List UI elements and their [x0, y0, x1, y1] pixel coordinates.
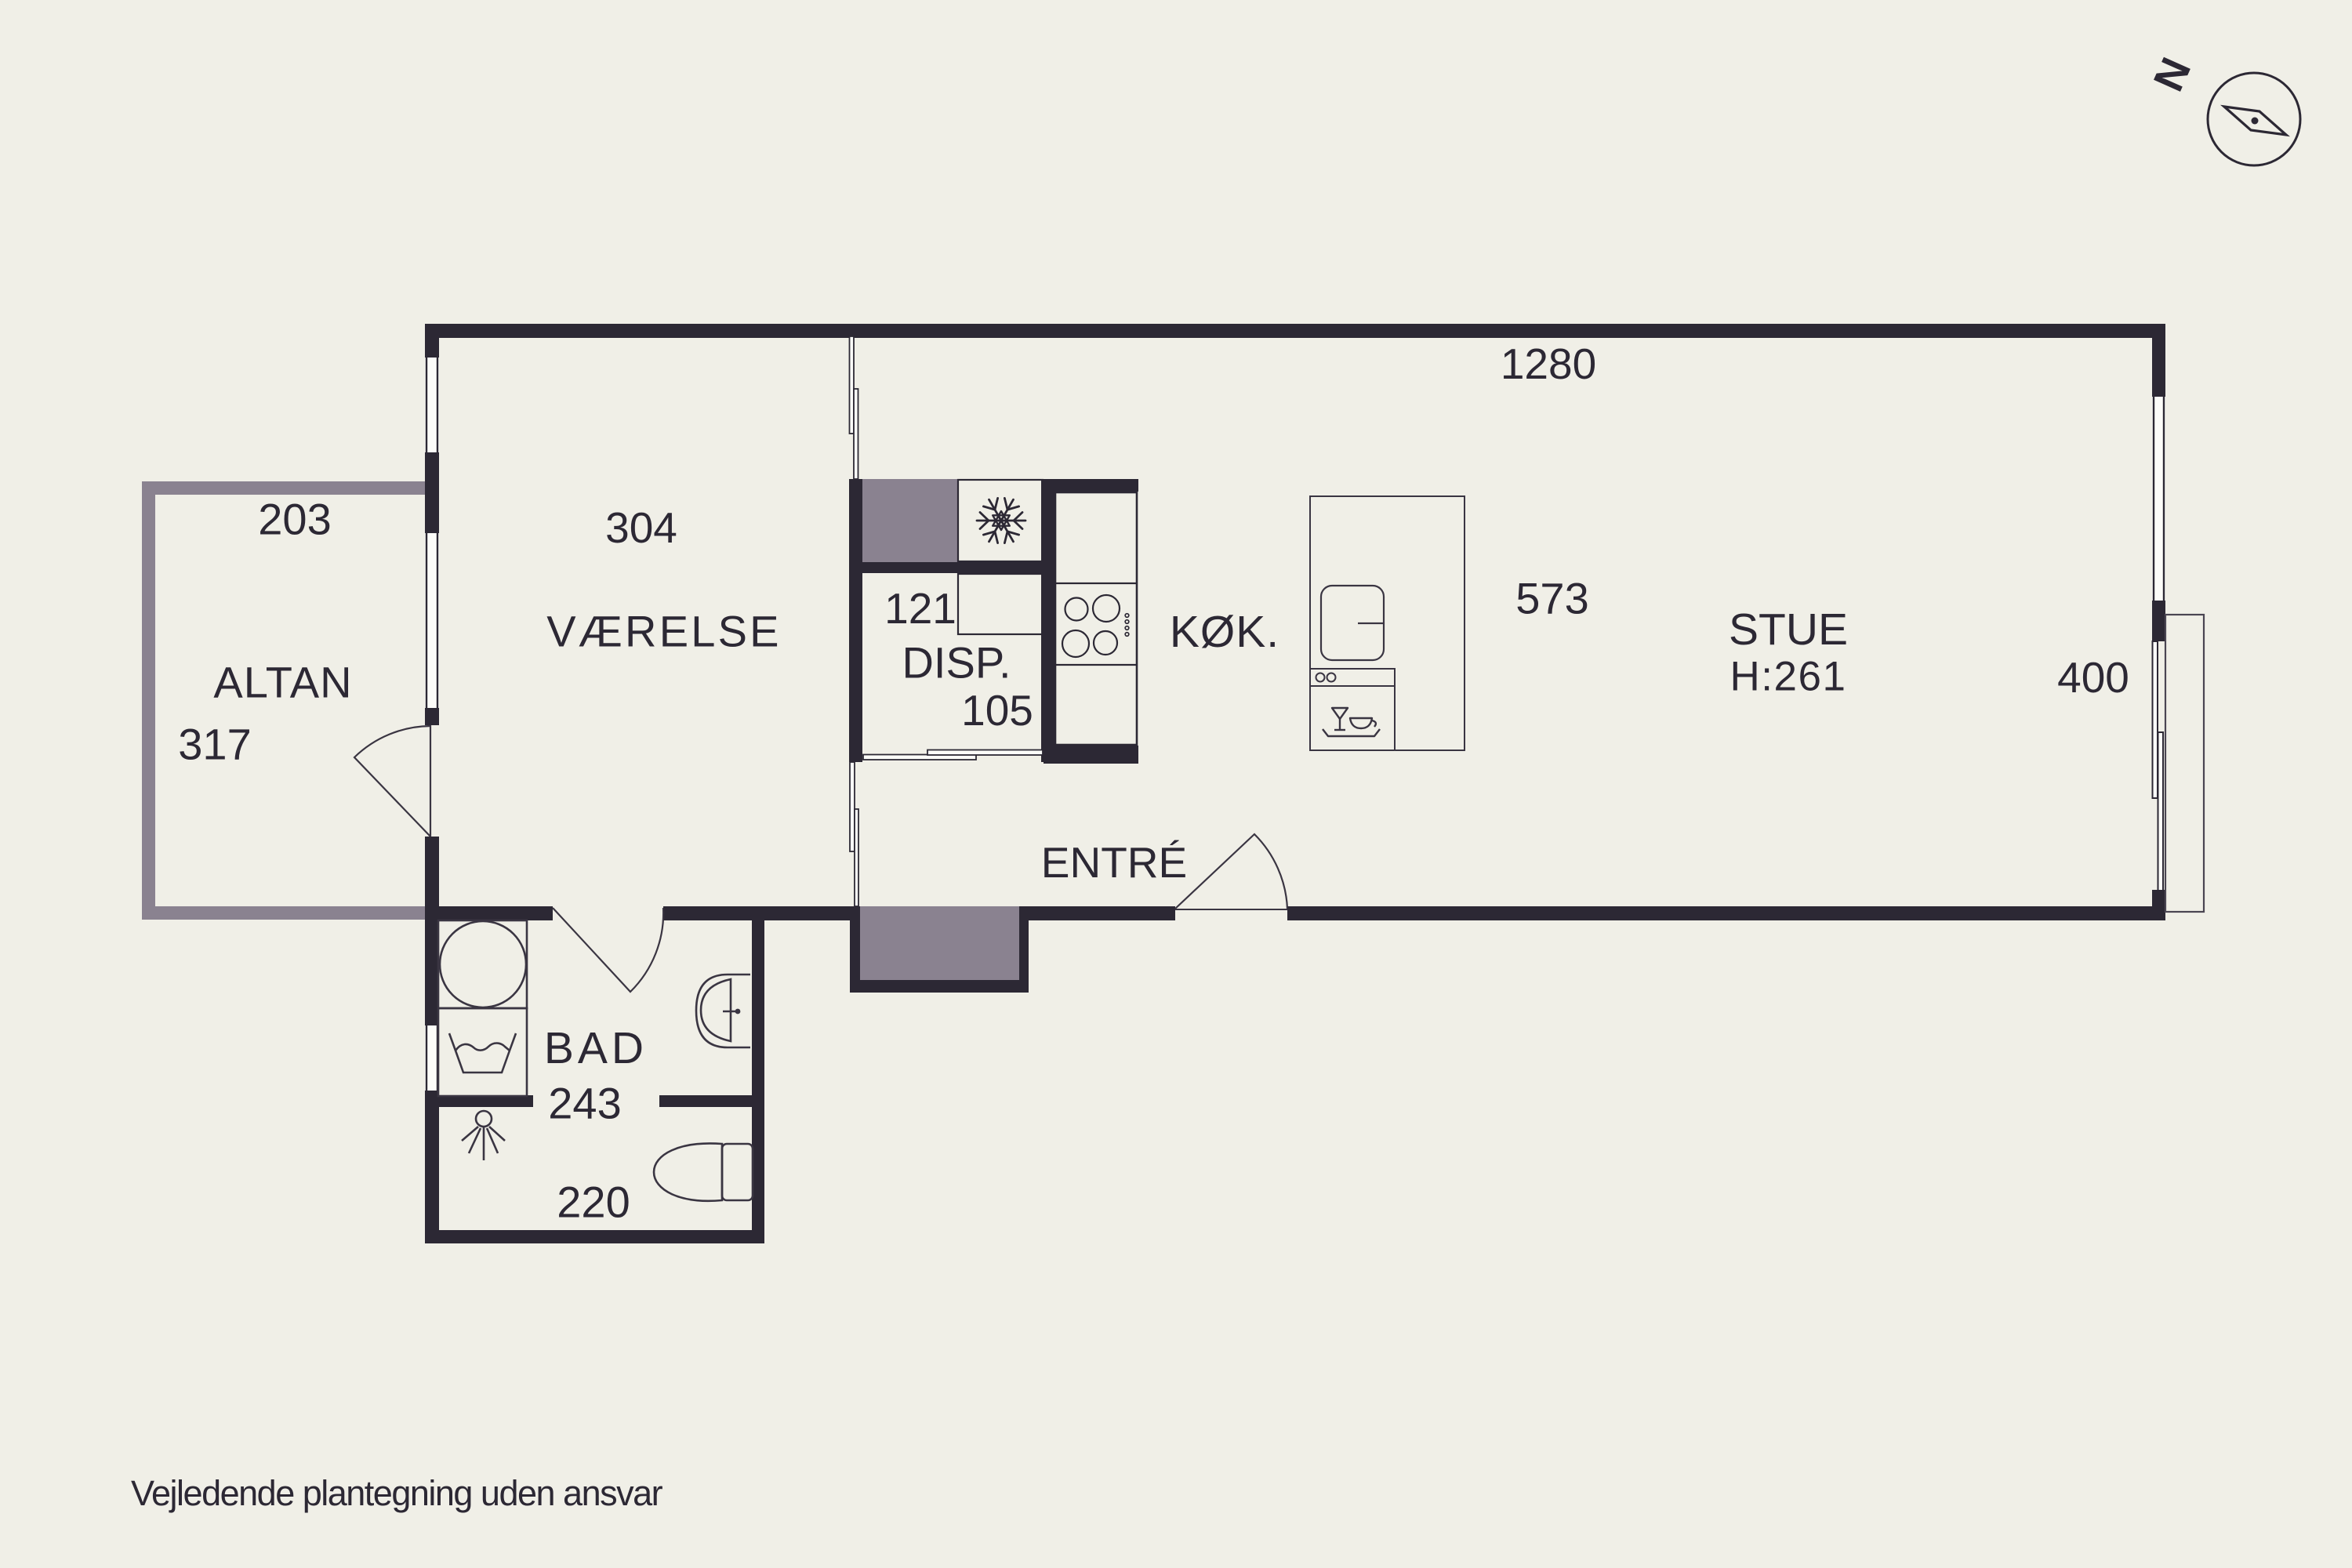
svg-text:VÆRELSE: VÆRELSE: [546, 607, 781, 656]
svg-text:400: 400: [2057, 653, 2129, 702]
svg-text:105: 105: [961, 686, 1033, 735]
svg-text:243: 243: [548, 1079, 621, 1128]
svg-text:ALTAN: ALTAN: [213, 658, 352, 707]
svg-text:1280: 1280: [1501, 339, 1596, 388]
svg-text:304: 304: [605, 503, 677, 552]
svg-text:Vejledende plantegning uden an: Vejledende plantegning uden ansvar: [131, 1473, 663, 1513]
svg-text:203: 203: [258, 495, 331, 544]
svg-text:220: 220: [557, 1178, 630, 1227]
svg-text:BAD: BAD: [544, 1023, 648, 1073]
svg-text:121: 121: [884, 584, 956, 633]
svg-text:317: 317: [178, 720, 251, 769]
svg-text:STUE: STUE: [1729, 604, 1848, 655]
svg-text:ENTRÉ: ENTRÉ: [1041, 838, 1187, 887]
svg-text:H:261: H:261: [1730, 654, 1847, 700]
svg-text:573: 573: [1515, 574, 1588, 623]
svg-text:DISP.: DISP.: [902, 638, 1011, 688]
svg-text:KØK.: KØK.: [1170, 607, 1279, 657]
